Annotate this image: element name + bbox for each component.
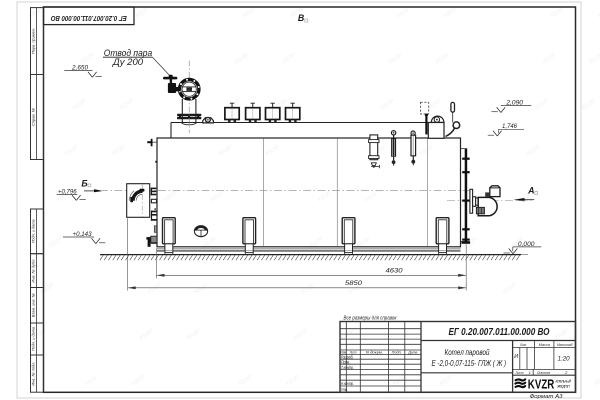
svg-text:Подп.: Подп.	[392, 350, 402, 354]
svg-text:1,746: 1,746	[502, 123, 518, 130]
svg-text:Котел паровой: Котел паровой	[445, 347, 490, 357]
svg-text:Перв. примен.: Перв. примен.	[31, 28, 35, 54]
svg-text:КОТЕЛЬНЫЙ: КОТЕЛЬНЫЙ	[556, 379, 572, 383]
svg-text:Лист: Лист	[515, 370, 524, 375]
svg-text:0,000: 0,000	[518, 241, 535, 248]
svg-text:Масштаб: Масштаб	[557, 342, 573, 347]
svg-text:Масса: Масса	[539, 342, 551, 347]
svg-text:В: В	[298, 13, 305, 23]
svg-text:4630: 4630	[386, 268, 404, 274]
svg-text:Подп. и дата: Подп. и дата	[31, 219, 35, 243]
svg-text:1:20: 1:20	[558, 356, 570, 363]
svg-text:1: 1	[529, 370, 531, 375]
svg-text:5850: 5850	[345, 281, 363, 287]
svg-text:Инв. № дубл.: Инв. № дубл.	[31, 259, 35, 283]
svg-text:Взам. инв. №: Взам. инв. №	[31, 293, 35, 317]
svg-text:ЗАВОД РЭП: ЗАВОД РЭП	[557, 385, 571, 389]
svg-text:Дата: Дата	[407, 350, 417, 354]
svg-text:ЕГ 0.20.007.011.00.000 ВО: ЕГ 0.20.007.011.00.000 ВО	[50, 14, 126, 23]
svg-text:Формат А3: Формат А3	[530, 394, 563, 400]
svg-text:N докум.: N докум.	[366, 350, 383, 354]
svg-text:+0,143: +0,143	[73, 231, 93, 238]
svg-text:И: И	[514, 354, 518, 360]
svg-text:Ду 200: Ду 200	[112, 57, 143, 67]
svg-text:ЕГ 0.20.007.011.00.000 ВО: ЕГ 0.20.007.011.00.000 ВО	[449, 326, 550, 338]
svg-text:KVZR: KVZR	[528, 376, 555, 391]
svg-text:Т.контр.: Т.контр.	[341, 365, 354, 370]
svg-text:Е -2,0-0,07-115- ГЛЖ ( Ж ): Е -2,0-0,07-115- ГЛЖ ( Ж )	[432, 358, 507, 368]
svg-text:Б: Б	[81, 179, 87, 189]
svg-text:Подп. и дата: Подп. и дата	[31, 327, 35, 351]
svg-text:2,090: 2,090	[505, 99, 523, 106]
svg-text:Справ. №: Справ. №	[31, 108, 35, 126]
svg-text:Листов: Листов	[536, 370, 550, 375]
svg-text:+0,796: +0,796	[58, 188, 77, 195]
svg-text:Инв. № подл.: Инв. № подл.	[31, 362, 35, 386]
svg-text:2,650: 2,650	[71, 64, 89, 71]
svg-text:А: А	[527, 186, 534, 196]
svg-text:Все размеры для справок: Все размеры для справок	[344, 316, 397, 322]
svg-text:Утв.: Утв.	[341, 387, 348, 392]
svg-text:Лит.: Лит.	[519, 342, 527, 347]
svg-text:Н.контр.: Н.контр.	[341, 381, 354, 386]
